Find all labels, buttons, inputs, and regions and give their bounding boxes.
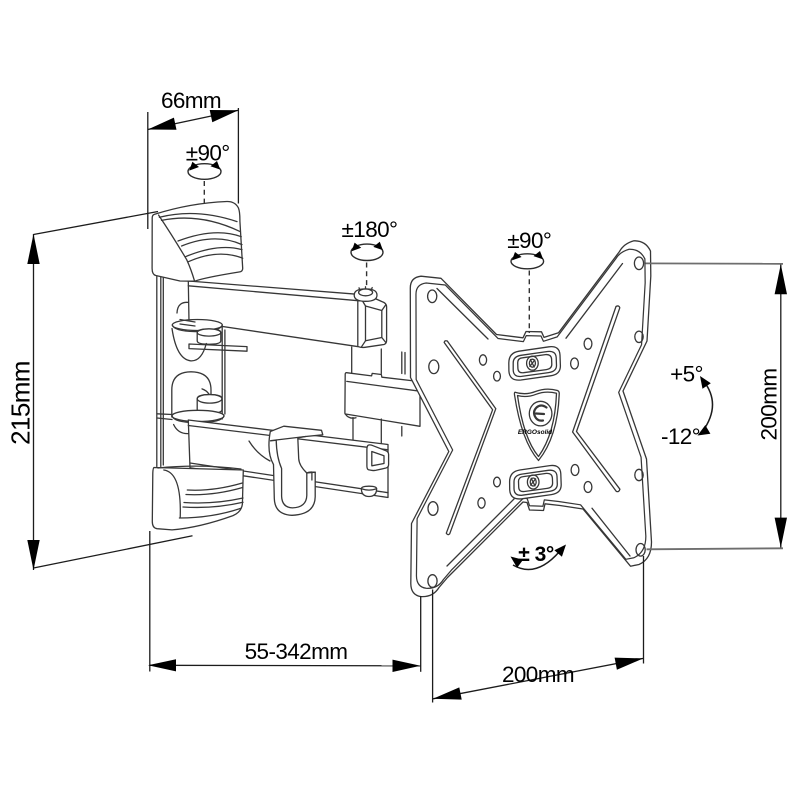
svg-text:200mm: 200mm: [757, 368, 782, 440]
svg-text:55-342mm: 55-342mm: [245, 639, 348, 664]
svg-text:200mm: 200mm: [502, 662, 574, 687]
svg-text:-12°: -12°: [661, 424, 700, 449]
svg-text:ERGOsolid: ERGOsolid: [518, 429, 553, 436]
svg-text:+5°: +5°: [670, 362, 703, 387]
svg-text:215mm: 215mm: [6, 361, 36, 445]
svg-text:±90°: ±90°: [186, 141, 230, 166]
svg-text:±90°: ±90°: [507, 228, 551, 253]
svg-text:± 3°: ± 3°: [518, 543, 554, 566]
svg-text:66mm: 66mm: [161, 88, 221, 113]
svg-text:±180°: ±180°: [342, 217, 398, 242]
